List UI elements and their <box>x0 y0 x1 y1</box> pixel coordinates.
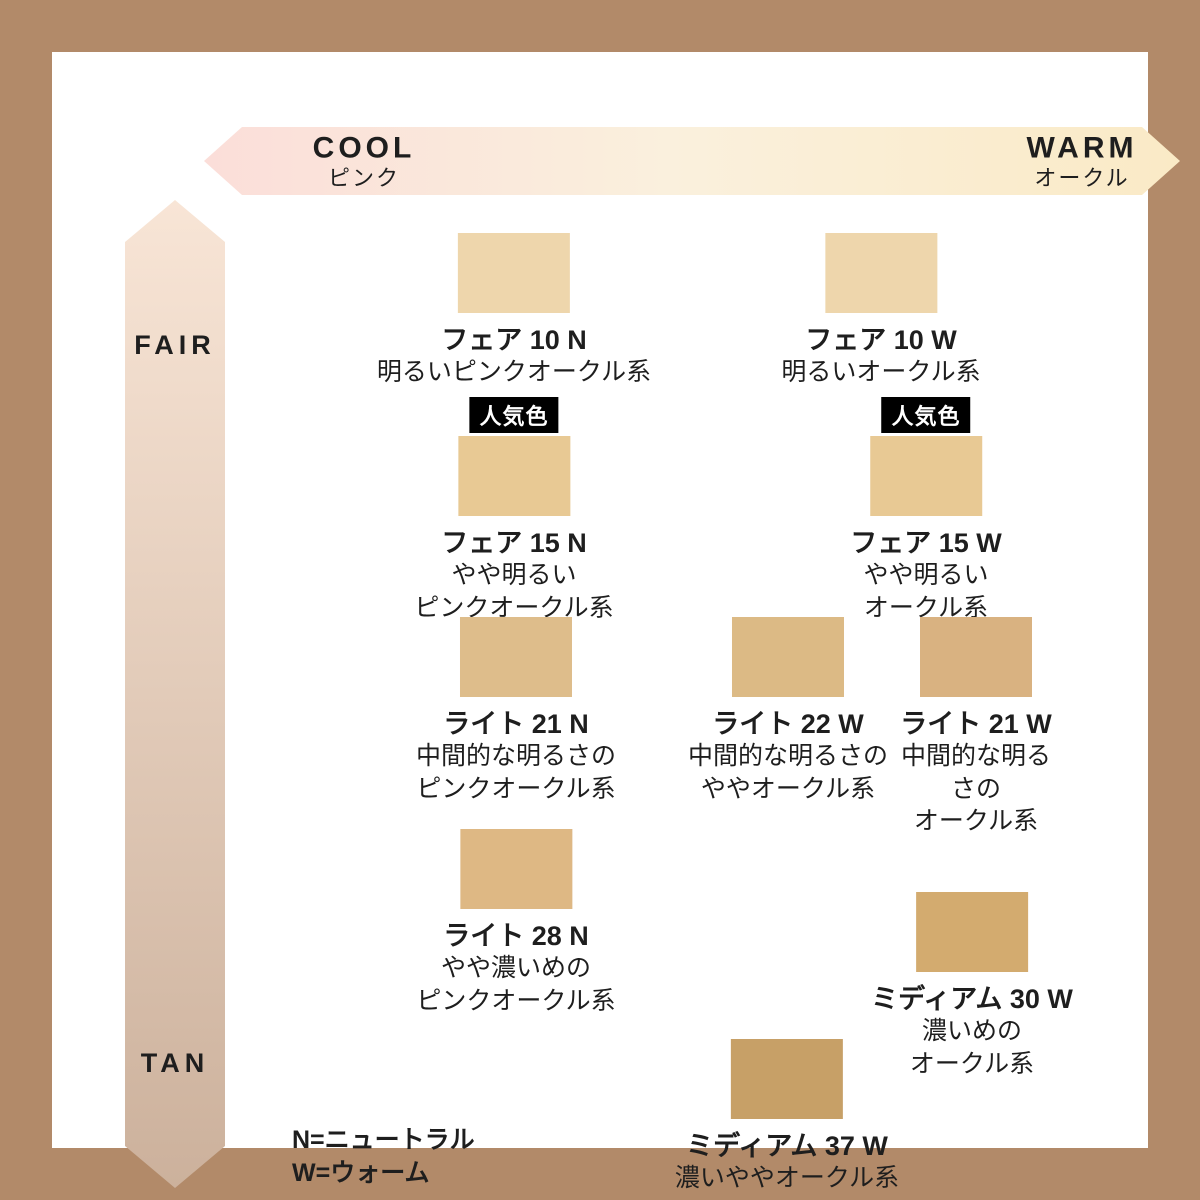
shade-light-28-n: ライト 28 N やや濃いめの ピンクオークル系 <box>416 829 615 1017</box>
shade-description: やや明るい オークル系 <box>863 559 988 624</box>
shade-fair-10-w: フェア 10 W 明るいオークル系 <box>781 233 980 389</box>
shade-name: ライト 21 N <box>443 708 589 740</box>
shade-fair-15-w: 人気色 フェア 15 W やや明るい オークル系 <box>850 397 1002 624</box>
cool-axis-label: COOL ピンク <box>313 131 416 190</box>
letter-code-legend: N=ニュートラル W=ウォーム <box>292 1124 475 1189</box>
shade-description: 中間的な明るさの ややオークル系 <box>688 740 888 805</box>
shade-name: フェア 15 W <box>850 527 1002 559</box>
fair-axis-label: FAIR <box>134 330 216 361</box>
shade-swatch <box>460 617 572 697</box>
shade-fair-10-n: フェア 10 N 明るいピンクオークル系 <box>377 233 651 389</box>
popular-color-badge: 人気色 <box>881 397 970 433</box>
cool-warm-axis-arrow: COOL ピンク WARM オークル <box>204 127 1180 195</box>
shade-swatch <box>458 233 570 313</box>
shade-light-22-w: ライト 22 W 中間的な明るさの ややオークル系 <box>688 617 888 805</box>
shade-swatch <box>825 233 937 313</box>
shade-description: 明るいオークル系 <box>781 356 980 389</box>
shade-swatch <box>460 829 572 909</box>
shade-medium-37-w: ミディアム 37 W 濃いややオークル系 <box>675 1039 899 1195</box>
shade-description: 中間的な明るさの ピンクオークル系 <box>416 740 616 805</box>
legend-warm: W=ウォーム <box>292 1157 475 1190</box>
shade-name: ライト 22 W <box>712 708 864 740</box>
shade-name: フェア 10 N <box>441 324 587 356</box>
shade-description: 中間的な明るさの オークル系 <box>890 740 1062 838</box>
warm-label-text: WARM <box>1027 131 1138 164</box>
legend-neutral: N=ニュートラル <box>292 1124 475 1157</box>
shade-name: ミディアム 30 W <box>871 983 1073 1015</box>
fair-tan-axis-arrow: FAIR TAN <box>125 200 225 1188</box>
shade-light-21-n: ライト 21 N 中間的な明るさの ピンクオークル系 <box>416 617 616 805</box>
chart-background: COOL ピンク WARM オークル FAIR TAN フェア 10 N 明るい… <box>52 52 1148 1148</box>
shade-swatch <box>920 617 1032 697</box>
cool-label-text: COOL <box>313 131 416 164</box>
shade-chart: COOL ピンク WARM オークル FAIR TAN フェア 10 N 明るい… <box>0 0 1200 1200</box>
shade-name: フェア 15 N <box>441 527 587 559</box>
shade-description: 濃いめの オークル系 <box>910 1015 1034 1080</box>
shade-swatch <box>916 892 1028 972</box>
shade-fair-15-n: 人気色 フェア 15 N やや明るい ピンクオークル系 <box>414 397 613 624</box>
shade-medium-30-w: ミディアム 30 W 濃いめの オークル系 <box>871 892 1073 1080</box>
shade-description: やや明るい ピンクオークル系 <box>414 559 613 624</box>
shade-name: ライト 21 W <box>900 708 1052 740</box>
shade-description: 濃いややオークル系 <box>675 1162 899 1195</box>
shade-swatch <box>731 1039 843 1119</box>
shade-description: 明るいピンクオークル系 <box>377 356 651 389</box>
shade-swatch <box>870 436 982 516</box>
shade-light-21-w: ライト 21 W 中間的な明るさの オークル系 <box>890 617 1062 838</box>
shade-name: ライト 28 N <box>443 920 589 952</box>
warm-axis-label: WARM オークル <box>1027 131 1138 190</box>
cool-sublabel-text: ピンク <box>313 166 416 190</box>
tan-axis-label: TAN <box>141 1048 210 1079</box>
warm-sublabel-text: オークル <box>1027 166 1138 190</box>
shade-swatch <box>458 436 570 516</box>
shade-name: フェア 10 W <box>805 324 957 356</box>
shade-swatch <box>732 617 844 697</box>
shade-description: やや濃いめの ピンクオークル系 <box>416 952 615 1017</box>
popular-color-badge: 人気色 <box>469 397 558 433</box>
shade-name: ミディアム 37 W <box>686 1130 888 1162</box>
